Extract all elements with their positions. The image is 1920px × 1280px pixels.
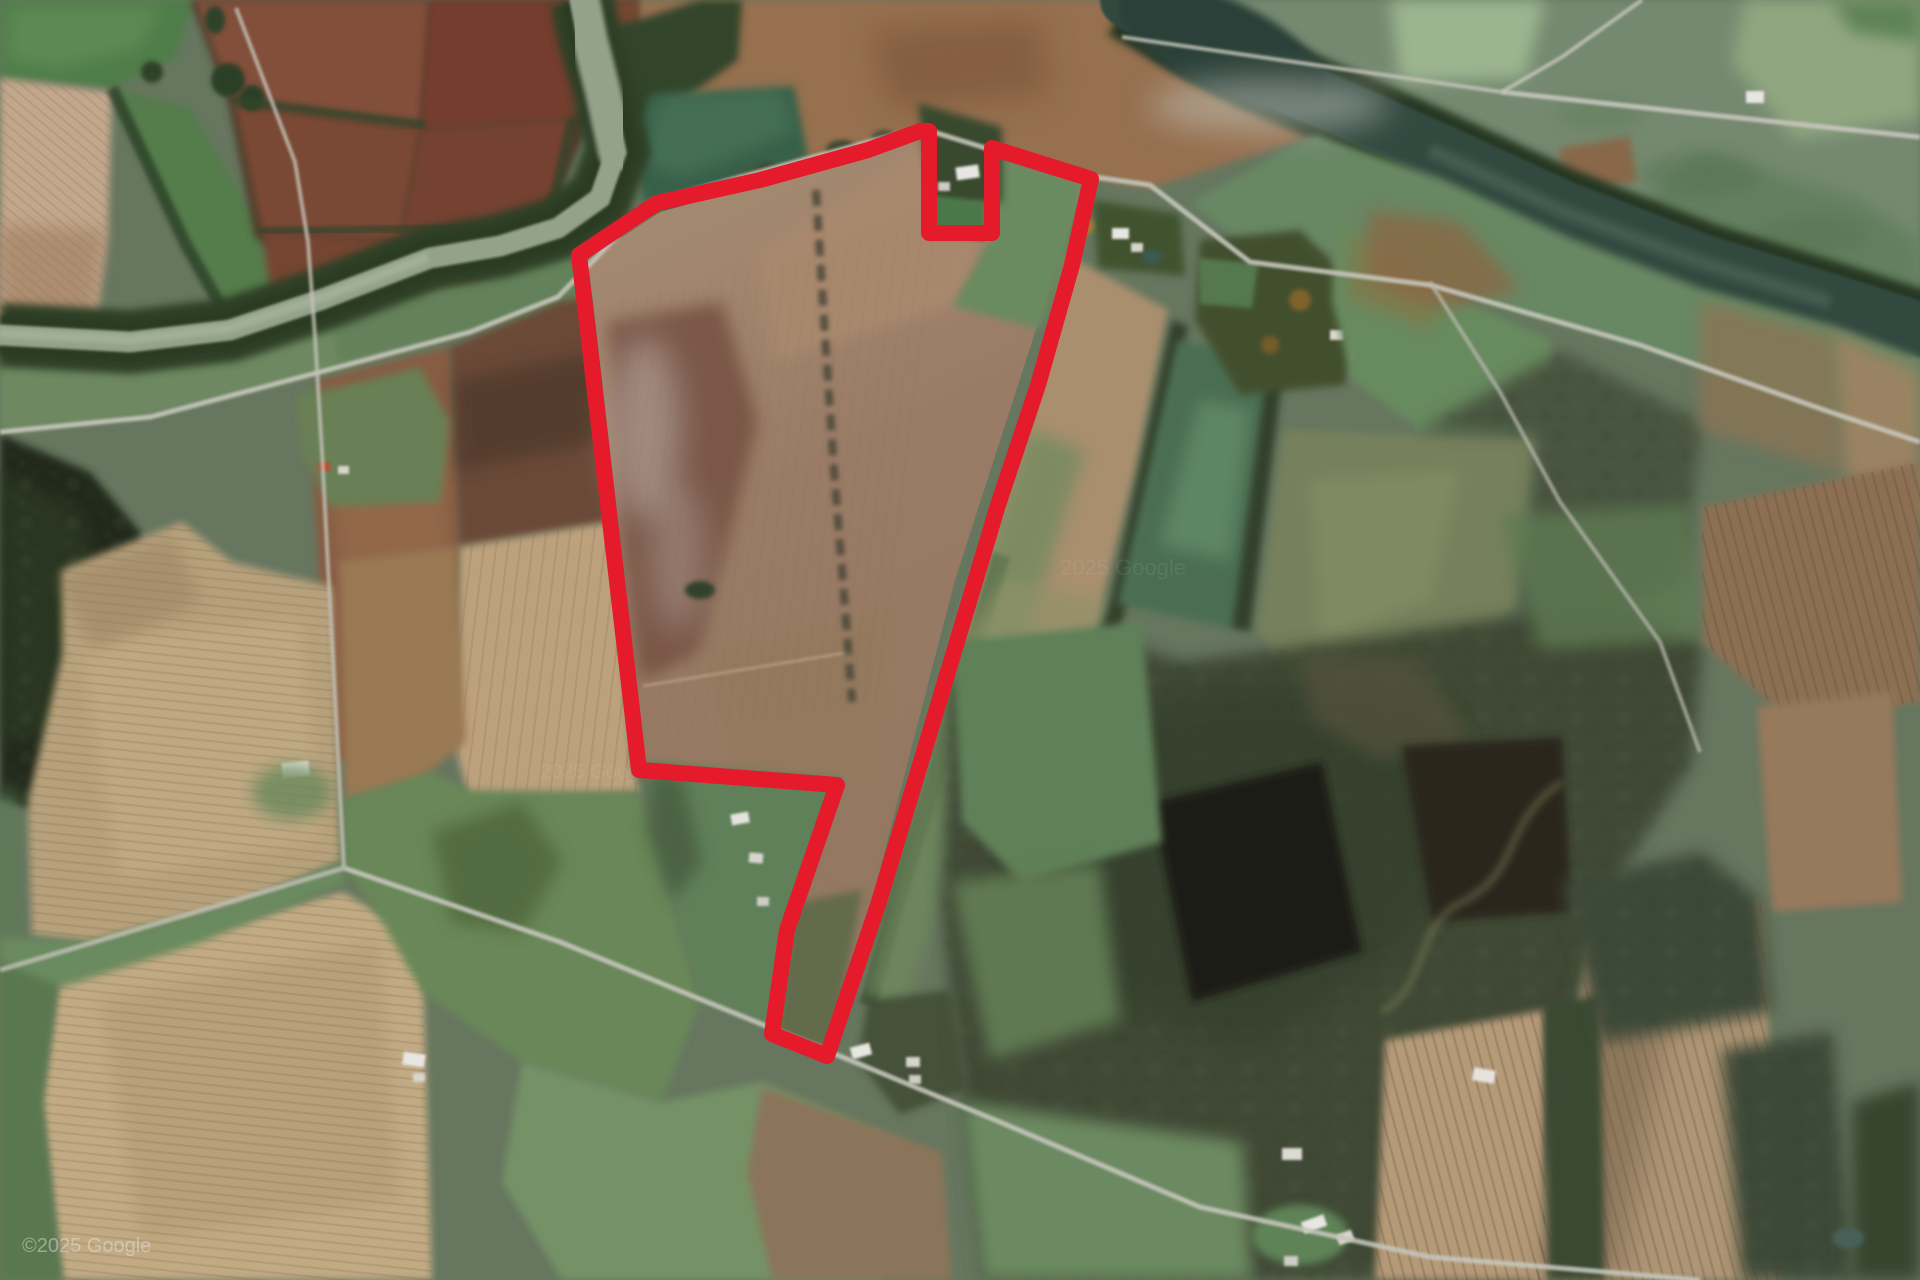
svg-text:2025 Google: 2025 Google	[1060, 555, 1186, 580]
svg-text:©2025 Google: ©2025 Google	[22, 1235, 151, 1257]
